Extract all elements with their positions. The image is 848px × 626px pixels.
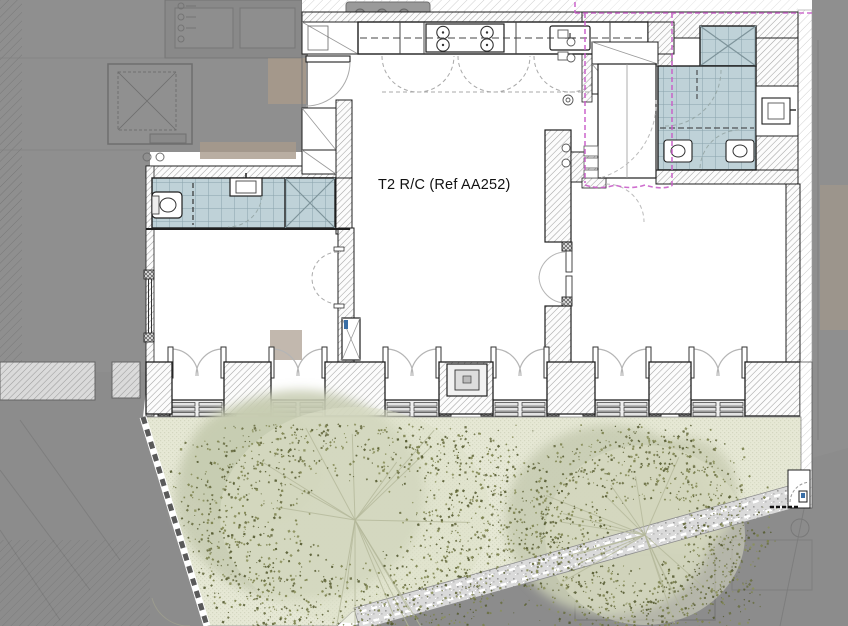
floor-plan-screenshot: T2 R/C (Ref AA252) [0,0,848,626]
toilet-icon [152,192,182,218]
unit-label: T2 R/C (Ref AA252) [378,177,511,193]
neighbor-furniture [268,58,306,104]
elevator-icon [108,64,192,144]
toilet-icon [664,140,692,162]
garden [143,390,810,626]
duct-shaft-icon [342,318,360,360]
toilet-icon [726,140,754,162]
bathroom-left [146,173,350,229]
floor-plan-canvas: T2 R/C (Ref AA252) [0,0,848,626]
planter-box [447,364,487,396]
